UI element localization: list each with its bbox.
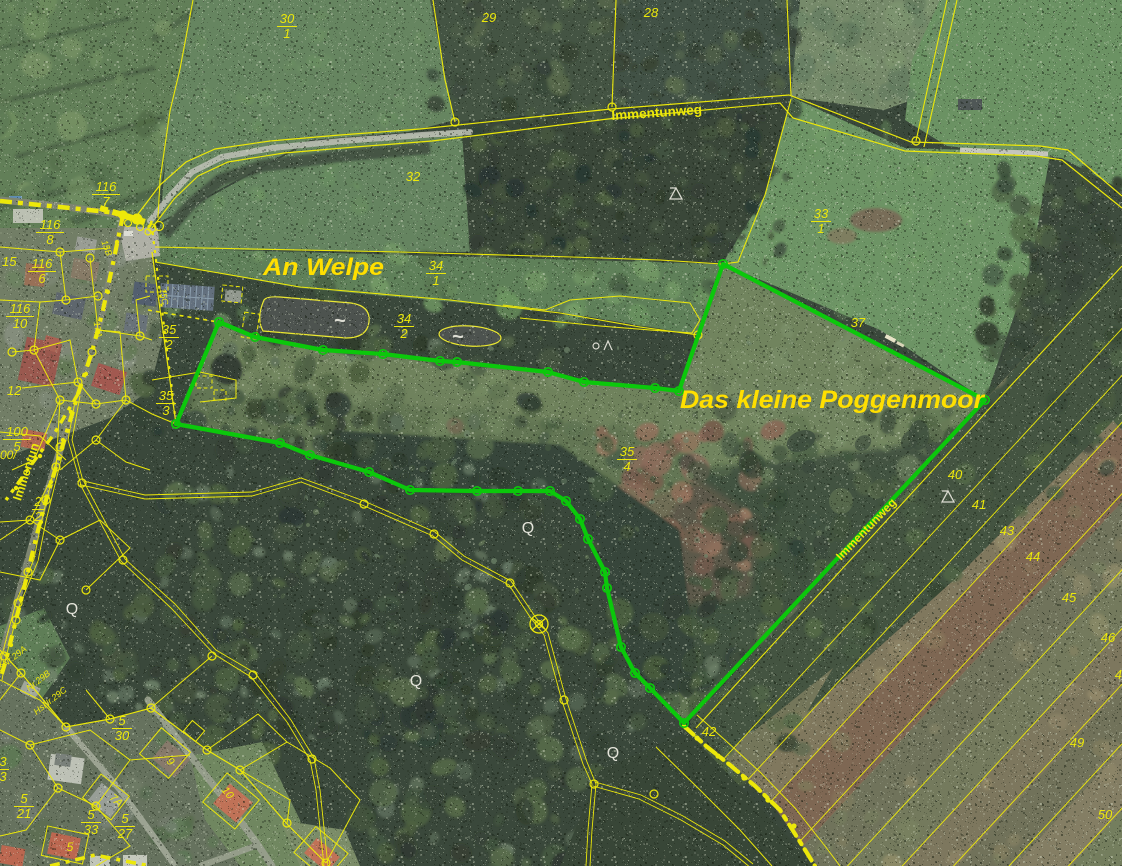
svg-text:40: 40 — [948, 467, 963, 482]
svg-text:Das kleine Poggenmoor: Das kleine Poggenmoor — [680, 386, 985, 414]
svg-text:2: 2 — [33, 494, 42, 509]
svg-text:49: 49 — [1070, 735, 1084, 750]
svg-text:37: 37 — [851, 315, 866, 330]
svg-text:3: 3 — [162, 403, 170, 418]
svg-text:6: 6 — [38, 271, 46, 286]
svg-text:35: 35 — [159, 388, 174, 403]
svg-text:1: 1 — [817, 221, 824, 236]
svg-text:4: 4 — [1115, 667, 1122, 682]
svg-text:45: 45 — [1062, 590, 1077, 605]
svg-text:8: 8 — [46, 232, 54, 247]
svg-text:5: 5 — [67, 840, 74, 854]
svg-text:2: 2 — [33, 509, 42, 524]
svg-text:27: 27 — [117, 826, 133, 841]
svg-text:5: 5 — [87, 807, 95, 822]
svg-text:33: 33 — [84, 822, 99, 837]
svg-text:35: 35 — [162, 322, 177, 337]
svg-text:7: 7 — [102, 194, 110, 209]
svg-text:50: 50 — [1098, 807, 1113, 822]
svg-text:29: 29 — [481, 10, 496, 25]
svg-text:116: 116 — [10, 301, 31, 316]
svg-text:43: 43 — [1000, 523, 1015, 538]
svg-text:Q: Q — [522, 520, 534, 537]
svg-text:2: 2 — [164, 337, 173, 352]
svg-text:12: 12 — [7, 383, 22, 398]
svg-text:21: 21 — [16, 806, 31, 821]
svg-text:5: 5 — [20, 791, 28, 806]
svg-text:28: 28 — [643, 5, 659, 20]
svg-text:00/: 00/ — [0, 448, 18, 462]
svg-text:41: 41 — [972, 497, 986, 512]
svg-text:5: 5 — [118, 713, 126, 728]
svg-text:10: 10 — [13, 316, 28, 331]
svg-text:30: 30 — [115, 728, 130, 743]
svg-text:1: 1 — [283, 26, 290, 41]
svg-text:34: 34 — [397, 311, 411, 326]
svg-text:116: 116 — [40, 217, 61, 232]
svg-text:34: 34 — [429, 258, 443, 273]
svg-text:46: 46 — [1101, 630, 1116, 645]
svg-text:116: 116 — [32, 256, 53, 271]
svg-text:35: 35 — [620, 444, 635, 459]
svg-text:15: 15 — [2, 254, 17, 269]
svg-text:An Welpe: An Welpe — [262, 254, 384, 281]
svg-text:~: ~ — [334, 310, 346, 332]
svg-text:2: 2 — [399, 326, 408, 341]
svg-text:4: 4 — [623, 459, 630, 474]
svg-text:3: 3 — [0, 769, 7, 784]
svg-text:44: 44 — [1026, 549, 1040, 564]
svg-text:Q: Q — [410, 673, 422, 690]
svg-text:42: 42 — [702, 724, 717, 739]
svg-text:100: 100 — [6, 424, 28, 439]
svg-text:3: 3 — [0, 754, 7, 769]
svg-text:Q: Q — [66, 601, 78, 618]
svg-text:5: 5 — [121, 811, 129, 826]
svg-text:Q: Q — [607, 745, 619, 762]
svg-text:33: 33 — [814, 206, 829, 221]
svg-text:~: ~ — [452, 326, 464, 348]
svg-text:30: 30 — [280, 11, 295, 26]
svg-text:32: 32 — [406, 169, 421, 184]
svg-text:116: 116 — [96, 179, 117, 194]
svg-text:1: 1 — [432, 273, 439, 288]
